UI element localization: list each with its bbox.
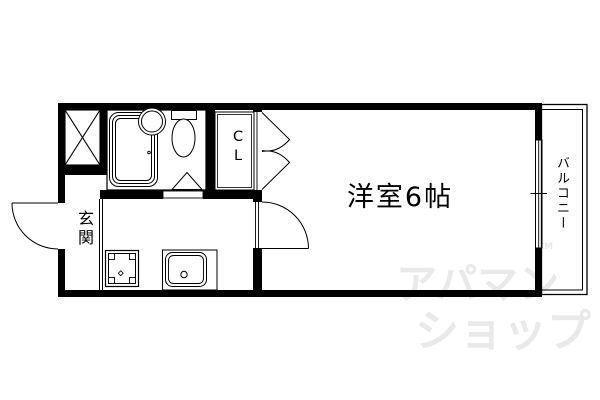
partition-line: [100, 199, 103, 290]
closet-letter-c: C: [233, 130, 243, 146]
wall-left-lower: [58, 249, 65, 297]
western-room-label: 洋室6帖: [330, 175, 470, 214]
wall-left-upper: [58, 103, 65, 203]
door-swing-icon: [262, 202, 309, 249]
wall-bath-closet-divider: [206, 110, 215, 198]
toilet-icon: [172, 111, 197, 158]
room-door-threshold: [256, 202, 259, 248]
entrance-label: 玄関: [72, 210, 96, 248]
wall-bath-bottom-left: [100, 190, 163, 199]
closet-label: C L: [228, 130, 248, 165]
pipe-shaft-icon: [65, 110, 100, 165]
wash-basin-icon: [139, 108, 166, 135]
floor-plan-page: アパマン TM ショップ: [0, 0, 600, 400]
wall-bottom: [58, 290, 542, 297]
stove-icon: [106, 251, 139, 287]
floor-plan-drawing: [0, 0, 600, 400]
entrance-door-swing-icon: [12, 203, 58, 249]
wall-top: [58, 103, 540, 110]
wall-room-mid-block: [253, 190, 262, 202]
bath-door-threshold: [163, 191, 203, 198]
double-door-icon: [262, 113, 290, 190]
wall-room-lower: [253, 248, 262, 297]
wall-shaft-bottom: [58, 165, 107, 175]
kitchen-sink-icon: [166, 253, 207, 287]
balcony-label: バルコニー: [552, 156, 571, 231]
window-icon: [531, 140, 548, 248]
closet-letter-l: L: [234, 149, 242, 165]
wall-room-top-stub: [253, 103, 262, 112]
